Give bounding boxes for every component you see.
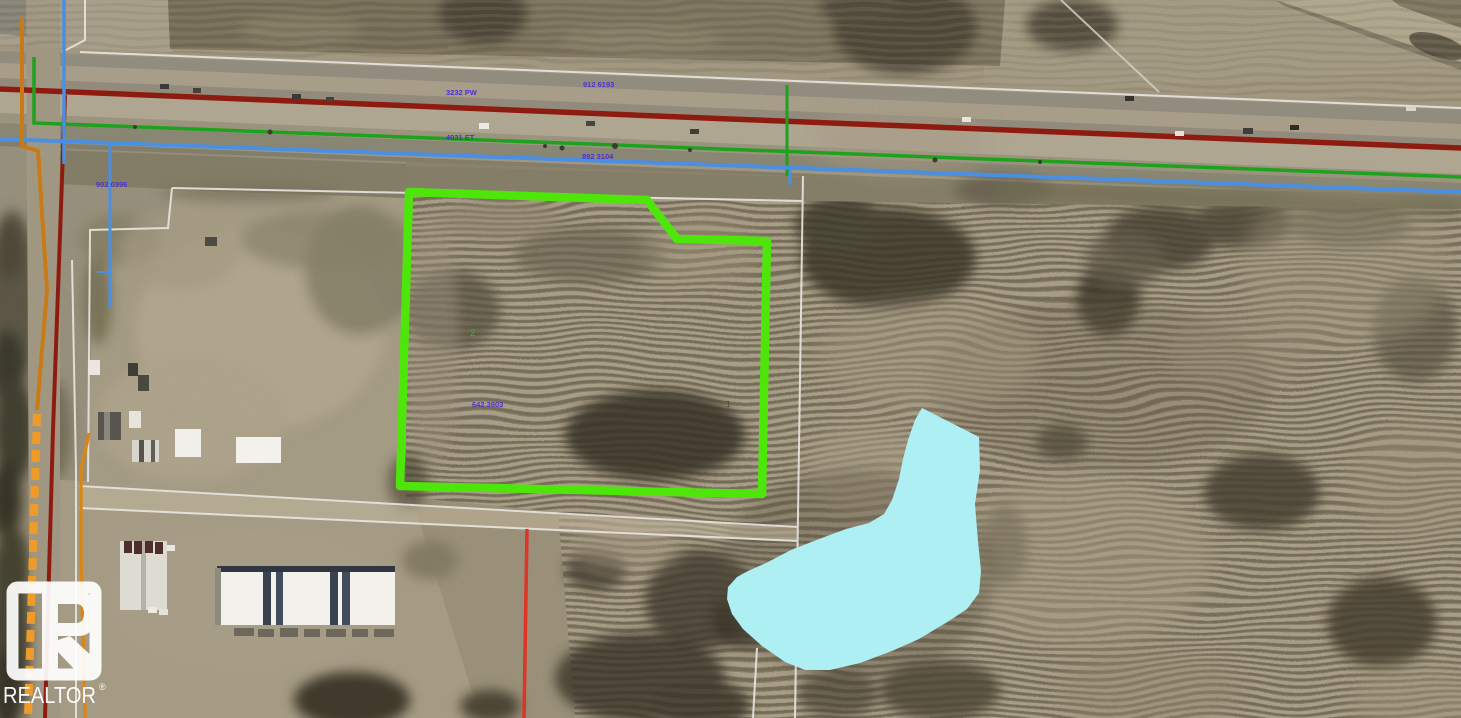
- svg-text:902 0396: 902 0396: [96, 180, 127, 189]
- svg-text:912 6193: 912 6193: [583, 80, 614, 89]
- svg-text:892 3104: 892 3104: [582, 152, 614, 161]
- svg-text:2: 2: [470, 328, 476, 339]
- svg-text:642 3903: 642 3903: [472, 400, 503, 409]
- svg-text:REALTOR: REALTOR: [3, 682, 96, 708]
- svg-text:4031 ET: 4031 ET: [446, 133, 475, 142]
- svg-text:3232 PW: 3232 PW: [446, 88, 478, 97]
- svg-text:®: ®: [99, 682, 106, 692]
- svg-text:1: 1: [726, 400, 731, 409]
